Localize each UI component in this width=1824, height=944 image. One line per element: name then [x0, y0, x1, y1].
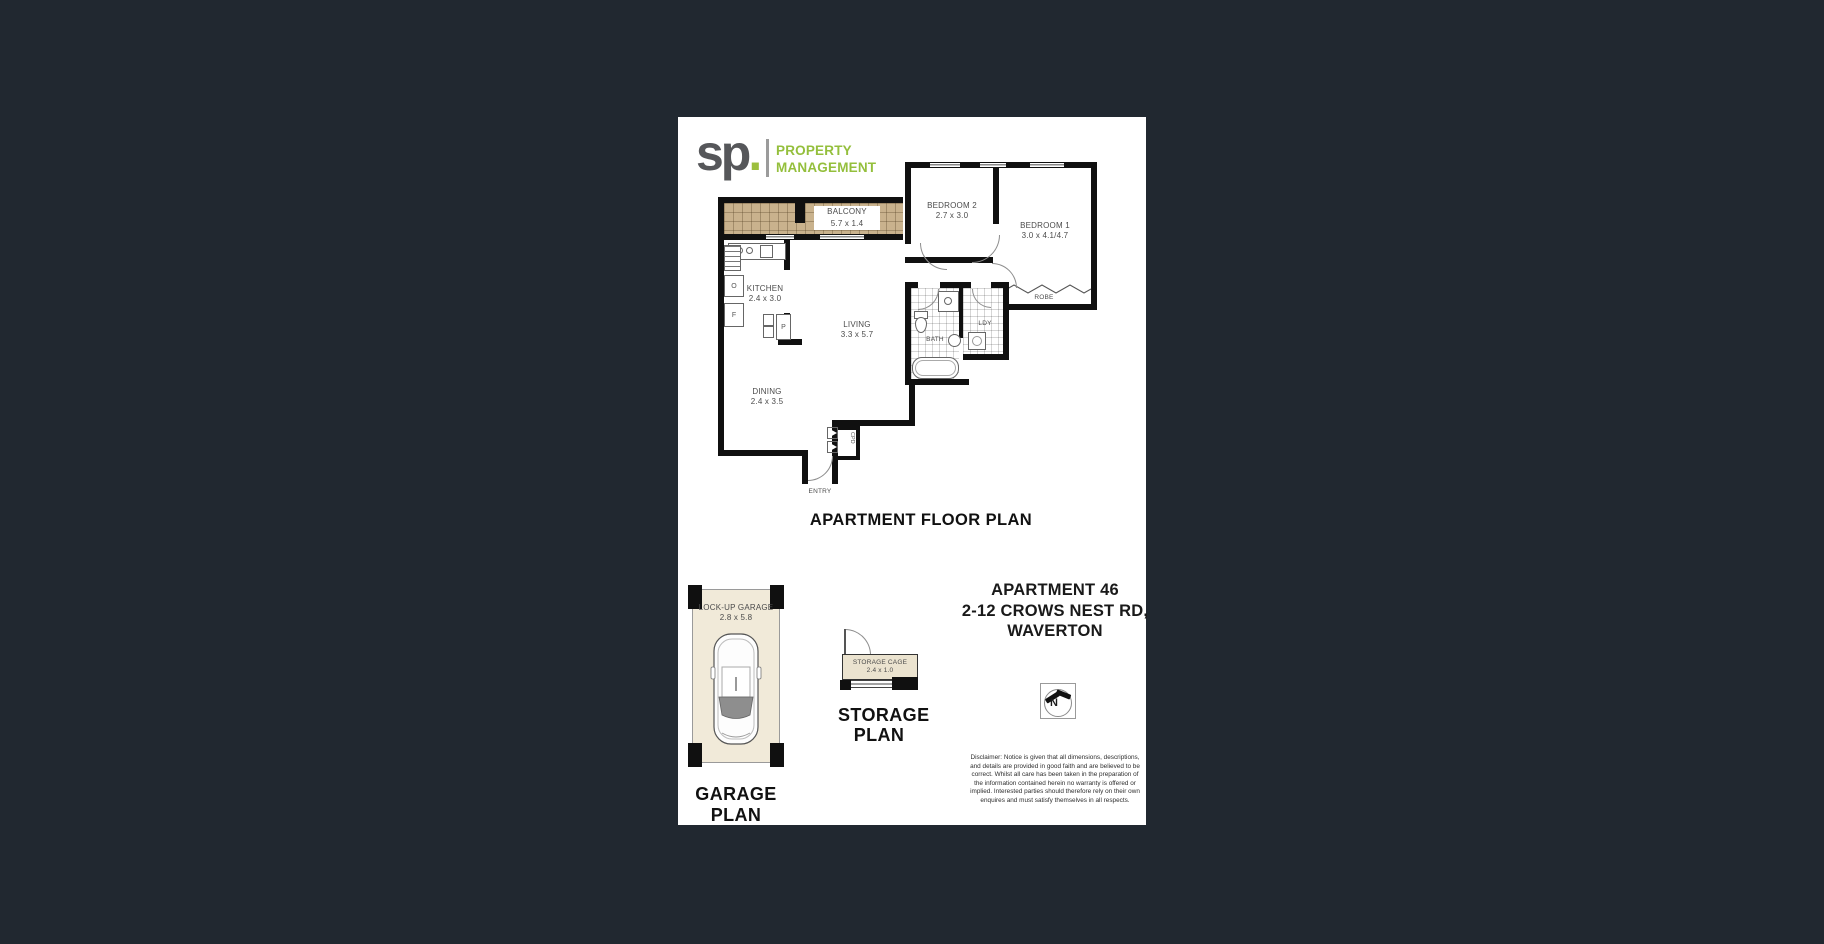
kitchen-dims: 2.4 x 3.0: [738, 294, 792, 304]
logo-line2: MANAGEMENT: [776, 160, 876, 177]
storage-plan-title: STORAGE PLAN: [838, 705, 920, 745]
wall: [1091, 162, 1097, 310]
disclaimer-line: and details are provided in good faith a…: [966, 763, 1144, 772]
storage-wall-block: [840, 680, 851, 690]
bedroom2-name: BEDROOM 2: [917, 201, 987, 211]
storage-title-line1: STORAGE: [838, 705, 920, 725]
wall: [909, 379, 915, 426]
sink-icon: [760, 245, 773, 258]
wall: [959, 288, 963, 338]
balcony-dims: 5.7 x 1.4: [814, 218, 880, 230]
garage-pillar: [688, 743, 702, 767]
bath-name: BATH: [918, 336, 952, 344]
north-arrow-icon: N: [1040, 683, 1076, 719]
address-line1: APARTMENT 46: [960, 580, 1150, 601]
entry-door-arc: [808, 456, 833, 481]
shower-drain-icon: [944, 297, 952, 305]
storage-cage-dims: 2.4 x 1.0: [843, 667, 917, 675]
address-line2: 2-12 CROWS NEST RD,: [960, 601, 1150, 622]
storage-cage-label: STORAGE CAGE 2.4 x 1.0: [843, 659, 917, 675]
basin-icon: [948, 334, 961, 347]
garage-room-dims: 2.8 x 5.8: [698, 613, 774, 623]
laundry-tub-icon: [968, 332, 986, 350]
garage-plan-title: GARAGE PLAN: [674, 784, 798, 826]
window: [820, 235, 864, 239]
robe-name: ROBE: [1016, 294, 1072, 302]
kitchen-name: KITCHEN: [738, 284, 792, 294]
car-top-view-icon: [710, 629, 762, 749]
wall: [795, 197, 805, 223]
dining-dims: 2.4 x 3.5: [740, 397, 794, 407]
storage-title-line2: PLAN: [838, 725, 920, 745]
bedroom1-dims: 3.0 x 4.1/4.7: [1007, 231, 1083, 241]
sp-logo: sp.: [696, 131, 759, 175]
pantry-icon: P: [776, 314, 791, 340]
robe-label: ROBE: [1016, 294, 1072, 302]
window: [930, 163, 960, 167]
kitchen-label: KITCHEN 2.4 x 3.0: [738, 284, 792, 304]
disclaimer-text: Disclaimer: Notice is given that all dim…: [966, 754, 1144, 806]
compass-n: N: [1050, 697, 1058, 709]
bath-label: BATH: [918, 336, 952, 344]
pantry-door-icon: [764, 327, 773, 337]
wall: [940, 282, 971, 288]
address-line3: WAVERTON: [960, 621, 1150, 642]
wall: [718, 450, 808, 456]
bathtub-inner: [915, 360, 956, 376]
wall: [1003, 282, 1009, 360]
wall: [993, 168, 999, 224]
wall: [963, 354, 1009, 360]
bedroom2-label: BEDROOM 2 2.7 x 3.0: [917, 201, 987, 221]
garage-room-label: LOCK-UP GARAGE 2.8 x 5.8: [698, 603, 774, 623]
cupboard-door-icon: [828, 442, 837, 452]
cooktop-burner-icon: [746, 247, 753, 254]
wall: [999, 304, 1097, 310]
logo-line1: PROPERTY: [776, 143, 876, 160]
window: [766, 235, 794, 239]
bedroom1-door-arc: [972, 235, 1000, 263]
logo-divider: [766, 139, 769, 177]
dishwasher-icon: [724, 245, 741, 271]
cupboard-label: CPD: [849, 432, 855, 444]
balcony-name: BALCONY: [814, 206, 880, 218]
wall: [718, 234, 903, 240]
disclaimer-line: correct. Whilst all care has been taken …: [966, 771, 1144, 780]
storage-door-leaf: [844, 629, 846, 654]
laundry-label: LDY: [970, 320, 1000, 328]
bedroom2-dims: 2.7 x 3.0: [917, 211, 987, 221]
disclaimer-line: enquires and must satisfy themselves in …: [966, 797, 1144, 806]
window: [1030, 163, 1064, 167]
pantry-letter: P: [781, 324, 786, 331]
apartment-plan-title: APARTMENT FLOOR PLAN: [798, 511, 1044, 530]
balcony-label: BALCONY 5.7 x 1.4: [814, 206, 880, 230]
bedroom2-door-arc: [920, 243, 947, 270]
sp-logo-text: sp: [696, 125, 748, 181]
laundry-tub-inner: [972, 336, 982, 346]
oven-letter: O: [731, 283, 736, 290]
sp-logo-dot: .: [748, 125, 759, 181]
storage-door-arc: [845, 629, 871, 655]
garage-room-name: LOCK-UP GARAGE: [698, 603, 774, 613]
floorplan-image[interactable]: sp. PROPERTY MANAGEMENT BALCONY 5.7 x 1.…: [678, 117, 1146, 825]
bedroom1-name: BEDROOM 1: [1007, 221, 1083, 231]
disclaimer-line: implied. Interested parties should there…: [966, 788, 1144, 797]
fridge-icon: F: [724, 303, 744, 327]
cupboard-door-icon: [828, 428, 837, 438]
wall: [905, 288, 911, 385]
disclaimer-line: the information contained herein no warr…: [966, 780, 1144, 789]
dining-label: DINING 2.4 x 3.5: [740, 387, 794, 407]
hall-door-arc: [992, 263, 1017, 288]
dining-name: DINING: [740, 387, 794, 397]
wall: [905, 162, 911, 244]
entry-name: ENTRY: [792, 488, 848, 496]
photo-viewer-background: sp. PROPERTY MANAGEMENT BALCONY 5.7 x 1.…: [0, 0, 1824, 944]
pantry-door-icon: [764, 315, 773, 325]
wall: [718, 197, 903, 203]
laundry-name: LDY: [970, 320, 1000, 328]
wall: [909, 379, 969, 385]
disclaimer-line: Disclaimer: Notice is given that all dim…: [966, 754, 1144, 763]
living-dims: 3.3 x 5.7: [830, 330, 884, 340]
storage-cage-name: STORAGE CAGE: [843, 659, 917, 667]
storage-wall-block: [892, 677, 918, 690]
entry-label: ENTRY: [792, 488, 848, 496]
window: [980, 163, 1006, 167]
bedroom1-label: BEDROOM 1 3.0 x 4.1/4.7: [1007, 221, 1083, 241]
living-label: LIVING 3.3 x 5.7: [830, 320, 884, 340]
living-name: LIVING: [830, 320, 884, 330]
fridge-letter: F: [732, 312, 736, 319]
property-address: APARTMENT 46 2-12 CROWS NEST RD, WAVERTO…: [960, 580, 1150, 642]
logo-wordmark: PROPERTY MANAGEMENT: [776, 143, 876, 176]
garage-pillar: [770, 743, 784, 767]
bathtub-icon: [912, 357, 959, 379]
cupboard: CPD: [836, 426, 860, 460]
